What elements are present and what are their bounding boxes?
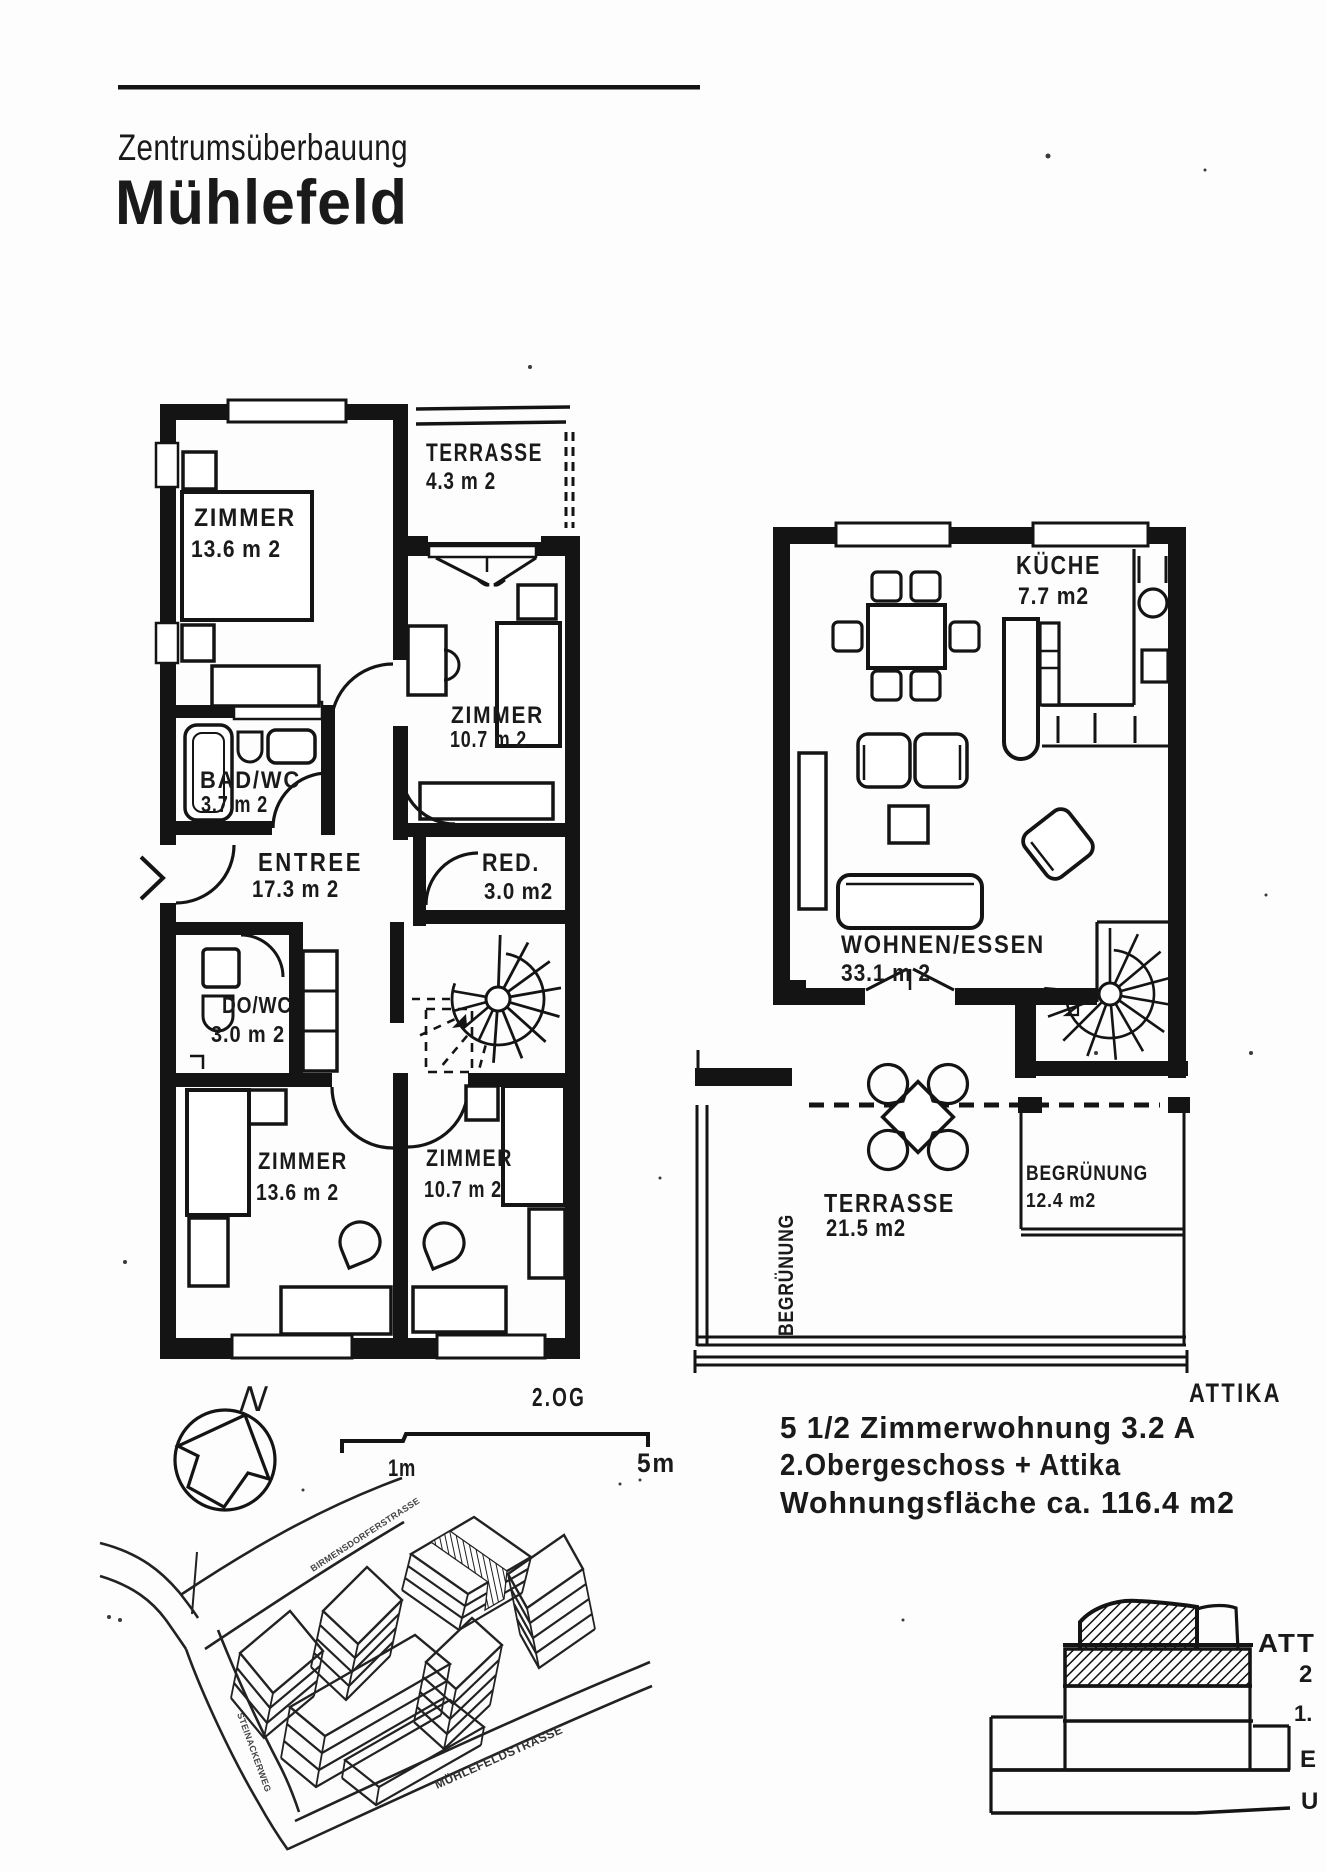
svg-text:5 1/2 Zimmerwohnung 3.2 A: 5 1/2 Zimmerwohnung 3.2 A bbox=[780, 1410, 1196, 1445]
svg-text:7.7 m2: 7.7 m2 bbox=[1018, 583, 1089, 610]
svg-text:2.OG: 2.OG bbox=[532, 1382, 586, 1412]
svg-text:10.7 m 2: 10.7 m 2 bbox=[424, 1176, 502, 1202]
svg-text:KÜCHE: KÜCHE bbox=[1016, 550, 1101, 580]
svg-text:DO/WC: DO/WC bbox=[222, 992, 292, 1018]
svg-text:Wohnungsfläche ca. 116.4 m2: Wohnungsfläche ca. 116.4 m2 bbox=[780, 1485, 1235, 1520]
svg-text:4.3 m 2: 4.3 m 2 bbox=[426, 468, 496, 495]
svg-text:TERRASSE: TERRASSE bbox=[824, 1188, 955, 1218]
svg-text:13.6 m 2: 13.6 m 2 bbox=[191, 536, 281, 563]
svg-text:3.7 m 2: 3.7 m 2 bbox=[201, 791, 268, 817]
svg-text:E: E bbox=[1300, 1746, 1316, 1773]
svg-text:1.: 1. bbox=[1294, 1701, 1312, 1726]
svg-text:33.1 m 2: 33.1 m 2 bbox=[841, 960, 931, 987]
svg-text:1m: 1m bbox=[388, 1455, 416, 1482]
svg-text:TERRASSE: TERRASSE bbox=[426, 439, 543, 467]
svg-text:3.0 m 2: 3.0 m 2 bbox=[211, 1021, 285, 1047]
svg-text:Mühlefeld: Mühlefeld bbox=[115, 168, 408, 238]
svg-text:Zentrumsüberbauung: Zentrumsüberbauung bbox=[118, 127, 408, 168]
svg-text:21.5 m2: 21.5 m2 bbox=[826, 1215, 906, 1242]
svg-text:13.6 m 2: 13.6 m 2 bbox=[256, 1179, 339, 1205]
svg-text:10.7 m 2: 10.7 m 2 bbox=[450, 726, 527, 752]
svg-text:BEGRÜNUNG: BEGRÜNUNG bbox=[775, 1214, 798, 1336]
svg-text:ZIMMER: ZIMMER bbox=[426, 1145, 513, 1172]
svg-text:BAD/WC: BAD/WC bbox=[200, 767, 301, 794]
svg-text:ZIMMER: ZIMMER bbox=[194, 504, 296, 532]
svg-text:ATT: ATT bbox=[1258, 1628, 1316, 1658]
svg-text:RED.: RED. bbox=[482, 849, 540, 877]
svg-text:2.Obergeschoss + Attika: 2.Obergeschoss + Attika bbox=[780, 1447, 1121, 1482]
svg-text:ZIMMER: ZIMMER bbox=[451, 702, 544, 729]
svg-text:ENTREE: ENTREE bbox=[258, 847, 363, 877]
svg-text:12.4 m2: 12.4 m2 bbox=[1026, 1190, 1096, 1212]
svg-text:17.3 m 2: 17.3 m 2 bbox=[252, 876, 339, 903]
svg-text:ZIMMER: ZIMMER bbox=[258, 1148, 348, 1175]
svg-text:U: U bbox=[1301, 1788, 1318, 1815]
svg-text:WOHNEN/ESSEN: WOHNEN/ESSEN bbox=[841, 931, 1045, 959]
svg-text:2: 2 bbox=[1299, 1661, 1312, 1688]
svg-text:ATTIKA: ATTIKA bbox=[1189, 1378, 1282, 1408]
svg-text:3.0 m2: 3.0 m2 bbox=[484, 878, 553, 904]
svg-text:BEGRÜNUNG: BEGRÜNUNG bbox=[1026, 1162, 1148, 1185]
svg-text:5m: 5m bbox=[637, 1448, 676, 1478]
